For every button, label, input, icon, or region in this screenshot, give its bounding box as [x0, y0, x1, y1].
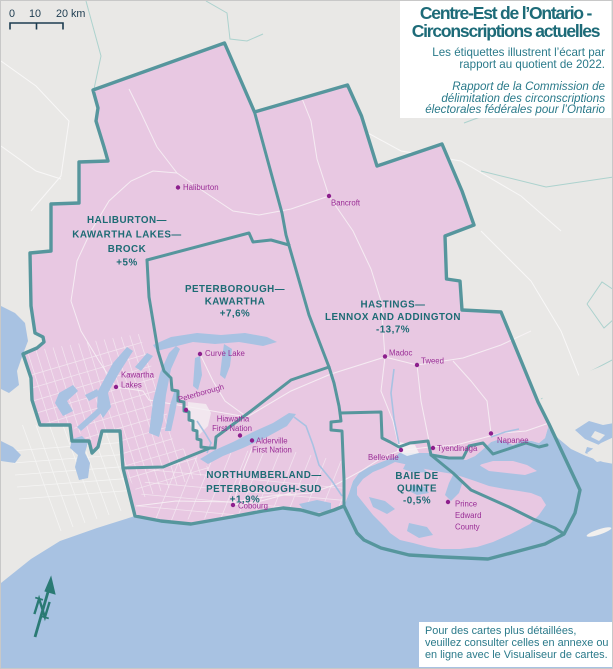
svg-text:PETERBOROUGH—: PETERBOROUGH— — [185, 284, 285, 295]
svg-text:Tweed: Tweed — [421, 357, 444, 366]
svg-text:+7,6%: +7,6% — [220, 309, 251, 320]
svg-text:Tyendinaga: Tyendinaga — [437, 444, 478, 453]
svg-text:Cobourg: Cobourg — [238, 502, 268, 511]
svg-text:QUINTE: QUINTE — [397, 484, 437, 495]
svg-text:+5%: +5% — [116, 258, 137, 269]
svg-text:Alderville: Alderville — [256, 437, 288, 446]
svg-text:HASTINGS—: HASTINGS— — [361, 300, 426, 311]
svg-text:Kawartha: Kawartha — [121, 371, 155, 380]
svg-text:BAIE DE: BAIE DE — [395, 471, 438, 482]
svg-text:Lakes: Lakes — [121, 381, 142, 390]
svg-text:0: 0 — [9, 8, 15, 20]
svg-text:Bancroft: Bancroft — [331, 199, 361, 208]
svg-text:Napanee: Napanee — [497, 436, 529, 445]
svg-text:First Nation: First Nation — [212, 424, 252, 433]
svg-text:Prince: Prince — [455, 500, 477, 509]
svg-text:20 km: 20 km — [56, 8, 85, 20]
svg-text:KAWARTHA: KAWARTHA — [205, 297, 266, 308]
svg-text:Curve Lake: Curve Lake — [205, 349, 245, 358]
svg-text:10: 10 — [29, 8, 41, 20]
svg-text:HALIBURTON—: HALIBURTON— — [87, 215, 167, 226]
svg-text:Haliburton: Haliburton — [183, 183, 219, 192]
svg-text:PETERBOROUGH-SUD: PETERBOROUGH-SUD — [206, 484, 322, 495]
svg-text:First Nation: First Nation — [252, 446, 292, 455]
svg-text:BROCK: BROCK — [108, 244, 146, 255]
svg-text:Edward: Edward — [455, 511, 481, 520]
svg-text:LENNOX AND ADDINGTON: LENNOX AND ADDINGTON — [325, 312, 461, 323]
svg-text:KAWARTHA LAKES—: KAWARTHA LAKES— — [72, 230, 181, 241]
svg-text:Belleville: Belleville — [368, 453, 399, 462]
svg-text:Madoc: Madoc — [389, 349, 413, 358]
svg-text:NORTHUMBERLAND—: NORTHUMBERLAND— — [206, 470, 321, 481]
svg-text:-0,5%: -0,5% — [403, 496, 431, 507]
svg-text:-13,7%: -13,7% — [376, 325, 410, 336]
svg-text:Hiawatha: Hiawatha — [217, 415, 250, 424]
svg-text:County: County — [455, 523, 480, 532]
